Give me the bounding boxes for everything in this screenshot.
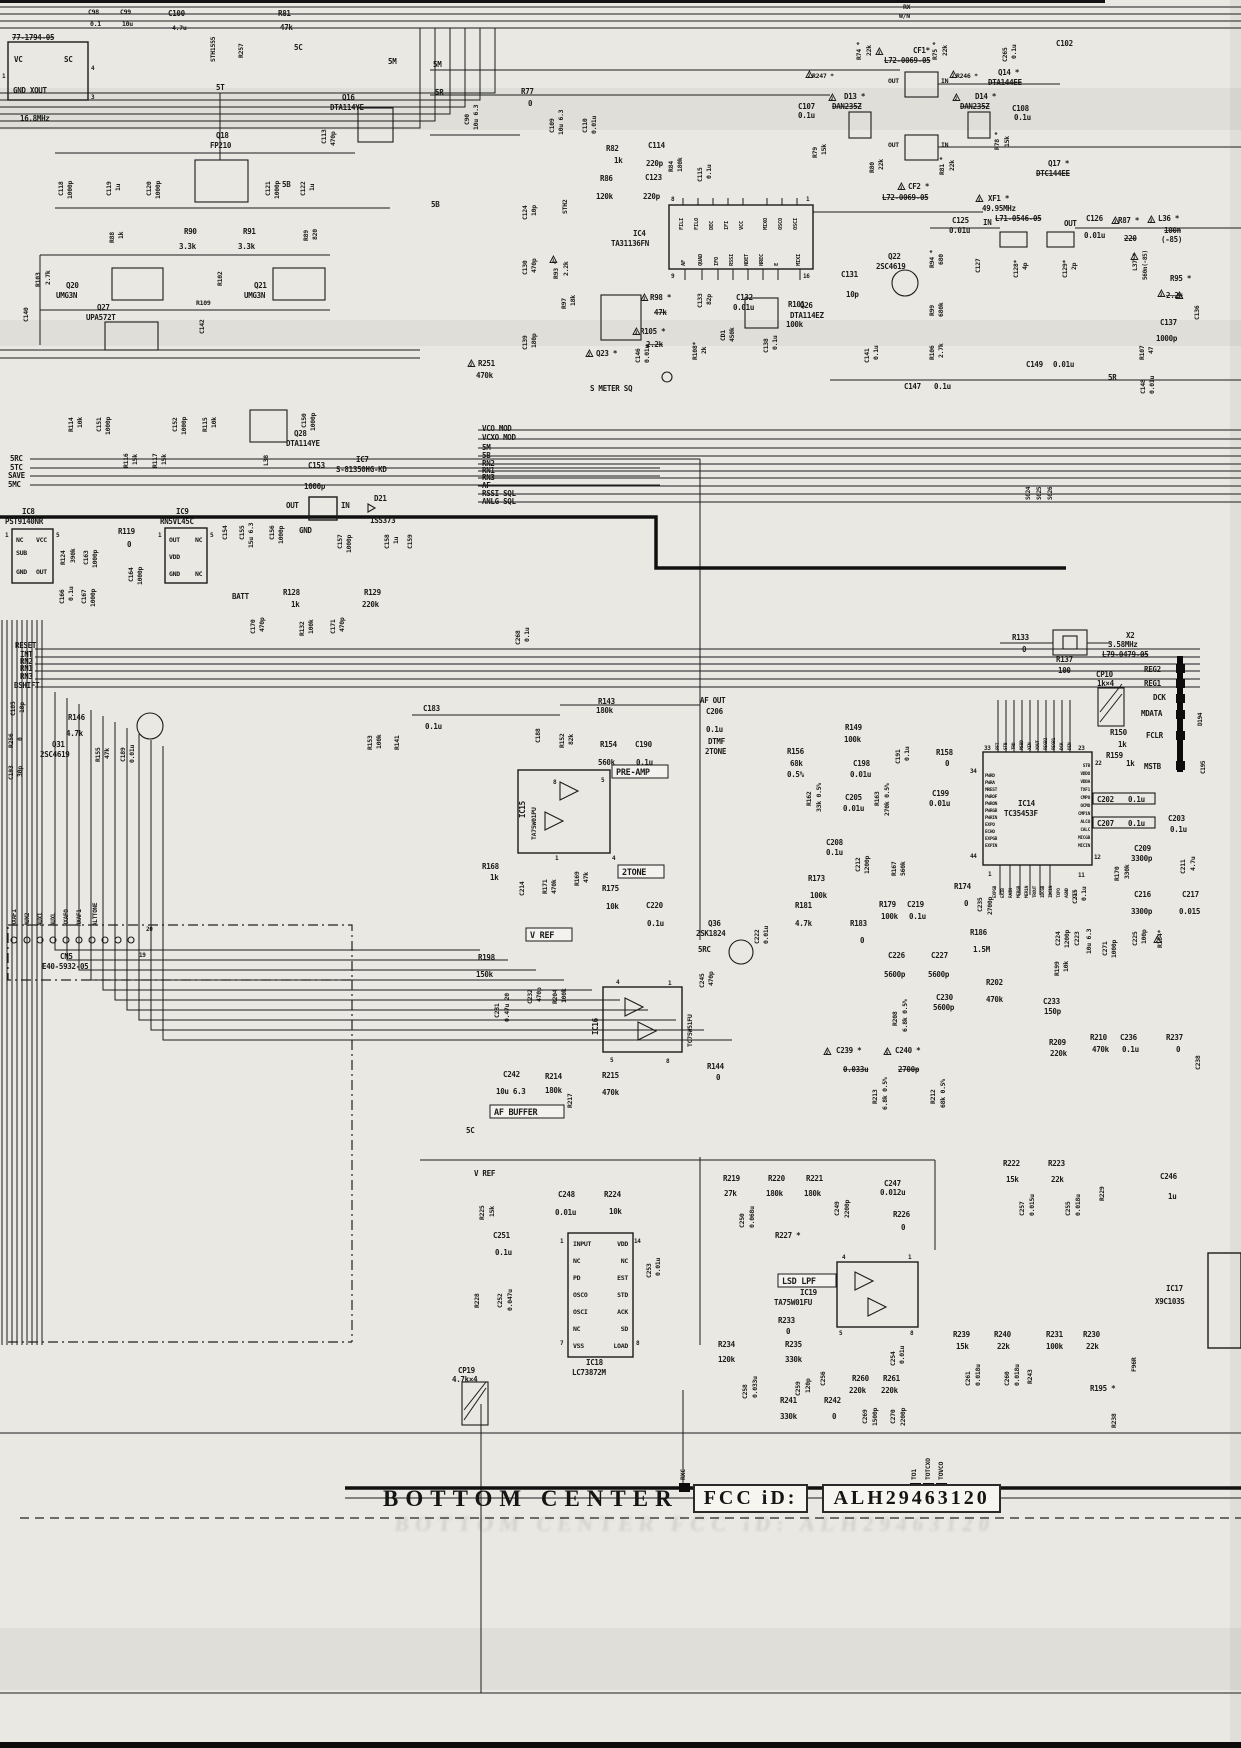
- component-label: C115: [696, 167, 704, 182]
- component-label: R88: [108, 232, 116, 243]
- component-label: 0: [786, 1327, 791, 1336]
- component-label: NREC: [759, 254, 765, 266]
- device-symbols: [11, 270, 918, 1316]
- opamp-icon: [855, 1272, 873, 1290]
- component-label: R81 *: [938, 157, 946, 175]
- component-label: 49.95MHz: [982, 204, 1016, 213]
- component-label: C110: [581, 118, 589, 133]
- component-label: REG2: [1144, 665, 1161, 674]
- component-label: R163: [873, 791, 881, 806]
- component-label: 0.01u: [555, 1208, 576, 1217]
- component-label: 0: [901, 1223, 906, 1232]
- component-label: 47k: [280, 23, 293, 32]
- component-label: 1000p: [91, 550, 99, 568]
- component-label: MREST: [985, 787, 998, 793]
- component-label: 10k: [76, 417, 84, 428]
- component-label: R199: [1053, 961, 1061, 976]
- scan-band: [0, 1628, 1241, 1690]
- component-label: 1000p: [180, 417, 188, 435]
- component-label: TXPO: [1056, 888, 1062, 898]
- component-label: 180k: [804, 1189, 822, 1198]
- component-label: 4.7k: [66, 729, 84, 738]
- component-label: TA31136FN: [611, 239, 650, 248]
- component-label: R158: [936, 748, 954, 757]
- boxed-label-text: 2TONE: [622, 868, 646, 878]
- component-label: 220p: [646, 159, 664, 168]
- component-label: C99: [120, 8, 131, 16]
- component-label: C269: [861, 1409, 869, 1424]
- component-label: CD1: [719, 330, 727, 341]
- component-label: 22k: [1086, 1342, 1099, 1351]
- component-label: 5: [601, 777, 605, 784]
- component-label: R117: [151, 453, 159, 468]
- component-label: 1u: [308, 183, 316, 191]
- component-label: IFI: [724, 221, 730, 230]
- component-label: R237: [1166, 1033, 1183, 1042]
- component-label: 15u 6.3: [247, 522, 255, 548]
- component-label: C127: [974, 258, 982, 273]
- component-label: 1u: [392, 536, 400, 544]
- component-label: R212: [929, 1089, 937, 1104]
- component-label: 0.01u: [850, 770, 871, 779]
- component-label: LC73872M: [572, 1368, 607, 1377]
- component-label: 22k: [941, 45, 949, 56]
- component-label: C256: [819, 1371, 827, 1386]
- component-label: C207: [1097, 819, 1114, 828]
- component-label: 100p: [1140, 929, 1148, 944]
- component-label: 23: [1078, 745, 1085, 752]
- component-label: 0: [945, 759, 950, 768]
- component-label: MER1N: [1024, 885, 1030, 898]
- component-label: R91: [243, 227, 256, 236]
- component-label: 0.01u: [762, 926, 770, 944]
- opamp-icon: [545, 812, 563, 830]
- component-label: C123: [645, 173, 663, 182]
- component-label: 1500p: [871, 1408, 879, 1426]
- component-label: C214: [518, 881, 526, 896]
- component-label: 0.1u: [771, 335, 779, 350]
- component-label: 22k: [865, 45, 873, 56]
- component-label: 15k: [956, 1342, 969, 1351]
- component-label: R239: [953, 1330, 971, 1339]
- component-label: 12: [1094, 854, 1101, 861]
- component-label: 15k: [131, 454, 139, 465]
- component-label: 100k: [1046, 1342, 1064, 1351]
- component-label: C231: [493, 1003, 501, 1018]
- scan-band: [0, 320, 1241, 346]
- component-label: MIXI: [796, 254, 802, 266]
- component-label: 2.2k: [562, 261, 570, 276]
- component-label: R102: [216, 271, 224, 286]
- component-label: 0.1u: [1080, 886, 1088, 901]
- component-label: 1.5M: [973, 945, 991, 954]
- component-label: C239 *: [836, 1046, 862, 1055]
- component-label: C242: [503, 1070, 520, 1079]
- component-label: C246: [1160, 1172, 1178, 1181]
- component-label: R225: [478, 1205, 486, 1220]
- component-label: 0.01u: [128, 745, 136, 763]
- component-label: SAVE: [8, 471, 26, 480]
- component-label: NC: [16, 536, 24, 544]
- component-label: BATT: [232, 592, 250, 601]
- component-label: 2k: [700, 346, 708, 354]
- component-label: 4.7u: [172, 24, 187, 32]
- component-label: 34: [970, 768, 977, 775]
- component-label: R173: [808, 874, 826, 883]
- component-label: R230: [1083, 1330, 1101, 1339]
- component-label: 47k: [103, 748, 111, 759]
- component-label: R152: [558, 733, 566, 748]
- component-label: 3.3k: [238, 242, 256, 251]
- component-label: Q26: [800, 301, 813, 310]
- component-label: D194: [1197, 712, 1204, 726]
- component-label: 1k: [614, 156, 623, 165]
- component-label: C136: [1193, 305, 1201, 320]
- component-label: R115: [201, 417, 209, 432]
- component-label: PWRGB: [985, 808, 998, 814]
- component-label: EXPIN: [985, 843, 998, 849]
- component-label: C113: [320, 129, 328, 144]
- component-label: C98: [88, 8, 99, 16]
- component-label: 1: [908, 1254, 912, 1261]
- component-label: C132: [736, 293, 753, 302]
- component-label: C148: [1139, 379, 1147, 394]
- component-label: 33: [984, 745, 991, 752]
- component-label: OUT: [169, 536, 180, 544]
- component-label: R89: [302, 230, 310, 241]
- component-label: IC14: [1018, 799, 1036, 808]
- component-label: 8: [910, 1330, 914, 1337]
- component-label: 5T: [216, 83, 225, 92]
- component-label: R174: [954, 882, 972, 891]
- component-label: R242: [824, 1396, 841, 1405]
- opamp-icon: [625, 998, 643, 1016]
- component-label: R220: [768, 1174, 786, 1183]
- component-label: C211: [1179, 859, 1187, 874]
- component-label: R97: [560, 298, 568, 309]
- component-label: C188: [534, 728, 542, 743]
- component-label: C212: [854, 857, 862, 872]
- component-label: C183: [423, 704, 441, 713]
- component-label: DIN: [1067, 742, 1073, 750]
- component-label: C147: [904, 382, 921, 391]
- component-label: IN: [941, 141, 949, 149]
- component-label: R169: [573, 871, 581, 886]
- component-label: Q36: [708, 919, 721, 928]
- component-label: IC9: [176, 507, 189, 516]
- component-label: C166: [58, 589, 66, 604]
- component-label: R114: [67, 417, 75, 432]
- wire-bundle: [0, 7, 1241, 1693]
- component-label: R119: [118, 527, 136, 536]
- component-label: 100k: [844, 735, 862, 744]
- component-label: Q27: [97, 303, 110, 312]
- component-label: LOAD: [614, 1342, 629, 1350]
- component-label: IN: [941, 77, 949, 85]
- component-label: 1: [668, 980, 672, 987]
- component-label: R217: [566, 1093, 574, 1108]
- component-label: 1000p: [345, 535, 353, 553]
- component-label: 1000p: [66, 181, 74, 199]
- component-label: 2SC4619: [876, 262, 906, 271]
- component-label: 10p: [846, 290, 859, 299]
- component-label: 0.1u: [872, 345, 880, 360]
- component-label: 10u 6.3: [472, 104, 480, 130]
- q36-fet-icon: [729, 940, 753, 964]
- component-label: 15k: [1006, 1175, 1019, 1184]
- component-label: CMPO: [1080, 795, 1090, 801]
- component-label: C137: [1160, 318, 1177, 327]
- component-label: R257: [237, 43, 245, 58]
- component-label: 1: [158, 532, 162, 539]
- component-label: ANLG SQL: [482, 497, 517, 506]
- component-label: 470p: [329, 131, 337, 146]
- component-label: Q20: [66, 281, 79, 290]
- component-label: PST9140NR: [5, 517, 44, 526]
- component-label: C202: [1097, 795, 1114, 804]
- component-label: 470k: [550, 879, 558, 894]
- component-label: C139: [521, 335, 529, 350]
- component-label: C100: [168, 9, 186, 18]
- component-label: C142: [198, 319, 206, 334]
- component-label: L71-0546-05: [995, 214, 1041, 223]
- component-label: RN3: [20, 672, 33, 681]
- component-label: R224: [604, 1190, 622, 1199]
- component-label: 0.1u: [1014, 113, 1031, 122]
- component-label: XOUT: [1035, 740, 1041, 750]
- component-label: REG1: [1144, 679, 1162, 688]
- component-label: R208: [891, 1011, 899, 1026]
- component-label: NC: [573, 1257, 581, 1265]
- component-label: 22k: [1051, 1175, 1064, 1184]
- component-label: 0.033u: [843, 1065, 868, 1074]
- component-label: C252: [496, 1293, 504, 1308]
- component-label: C193: [7, 765, 15, 780]
- component-label: R156: [787, 747, 805, 756]
- component-label: 0.1u: [647, 919, 664, 928]
- terminal-pad: [1176, 679, 1185, 688]
- component-label: R162: [805, 791, 813, 806]
- component-label: R94 *: [928, 250, 936, 268]
- component-label: 4: [616, 979, 620, 986]
- component-label: GND XOUT: [13, 86, 48, 95]
- component-label: IC17: [1166, 1284, 1183, 1293]
- component-label: 1u: [1168, 1192, 1176, 1201]
- component-label: R171: [541, 879, 549, 894]
- component-label: IFO: [714, 256, 720, 266]
- component-label: 9: [671, 273, 675, 280]
- component-label: TOVCO: [937, 1462, 945, 1480]
- component-label: 0: [127, 540, 132, 549]
- component-label: 3300p: [1131, 854, 1153, 863]
- component-label: C109: [548, 118, 556, 133]
- component-label: 1k: [490, 873, 499, 882]
- component-label: C185: [9, 701, 17, 716]
- component-label: R186: [970, 928, 988, 937]
- terminal-pad: [1176, 731, 1185, 740]
- component-label: CF2 *: [908, 182, 930, 191]
- component-label: GND: [16, 568, 27, 576]
- component-label: 5: [56, 532, 60, 539]
- component-label: 15k: [160, 454, 168, 465]
- component-label: R222: [1003, 1159, 1020, 1168]
- cn5-pin-icon: [89, 937, 95, 943]
- component-label: R74 *: [855, 42, 863, 60]
- component-label: R261: [883, 1374, 901, 1383]
- component-label: C130: [521, 260, 529, 275]
- component-label: C206: [706, 707, 724, 716]
- component-label: EXPGB: [985, 836, 998, 842]
- component-label: 30p: [16, 766, 24, 777]
- component-label: AF: [681, 260, 687, 266]
- q31-transistor-icon: [137, 713, 163, 739]
- component-label: R103: [34, 272, 42, 287]
- component-label: C138: [762, 338, 770, 353]
- component-label: Q31: [52, 740, 65, 749]
- component-label: 16.8MHz: [20, 114, 50, 123]
- q21-box: [273, 268, 325, 300]
- component-label: CN5: [60, 952, 73, 961]
- component-label: VCC: [36, 536, 47, 544]
- boxed-label-text: LSD LPF: [782, 1277, 816, 1287]
- component-label: 10u 6.3: [496, 1087, 526, 1096]
- component-label: VDD: [617, 1240, 628, 1248]
- component-label: 0.1u: [826, 848, 843, 857]
- component-label: 470p: [338, 617, 346, 632]
- component-label: 11: [1078, 872, 1085, 879]
- component-label: AF OUT: [700, 696, 726, 705]
- component-label: 8: [553, 779, 557, 786]
- component-label: IN: [983, 218, 992, 227]
- component-label: R143: [598, 697, 616, 706]
- component-label: R124: [59, 550, 67, 565]
- component-label: 180k: [676, 157, 684, 172]
- component-label: R87 *: [1118, 216, 1140, 225]
- component-label: C158: [383, 534, 391, 549]
- component-label: C190: [635, 740, 653, 749]
- component-label: C119: [105, 181, 113, 196]
- component-label: C226: [888, 951, 906, 960]
- component-label: EST: [617, 1274, 628, 1282]
- component-label: 220: [1124, 234, 1137, 243]
- component-label: R233: [778, 1316, 796, 1325]
- component-label: Q28: [294, 429, 307, 438]
- component-label: NDET: [744, 253, 750, 266]
- component-label: 0.5%: [787, 770, 805, 779]
- component-label: 0.018u: [974, 1364, 982, 1386]
- component-label: C205: [845, 793, 862, 802]
- component-label: REGB1: [1051, 737, 1057, 750]
- component-label: C203: [1168, 814, 1186, 823]
- component-label: 1200p: [863, 856, 871, 874]
- component-label: OSCO: [778, 217, 784, 230]
- bleedthrough-text: BOTTOM CENTER FCC iD: ALH29463120: [394, 1512, 997, 1537]
- component-label: NC: [621, 1257, 629, 1265]
- component-label: R99: [928, 305, 936, 316]
- component-label: 5600p: [928, 970, 950, 979]
- ic4-box: [669, 205, 813, 269]
- opamp-icon: [560, 782, 578, 800]
- component-label: DTMF: [708, 737, 726, 746]
- component-label: MICGB: [1078, 835, 1091, 841]
- component-label: 1: [806, 196, 810, 203]
- component-label: 560k: [899, 861, 907, 876]
- component-label: 4p: [1021, 262, 1029, 270]
- component-label: C248: [558, 1190, 576, 1199]
- component-label: 0.47u 20: [503, 993, 511, 1022]
- component-label: 0.01u: [1084, 231, 1105, 240]
- cn5-pin-icon: [63, 937, 69, 943]
- component-label: R223: [1048, 1159, 1066, 1168]
- component-label: 10u 6.3: [1085, 928, 1093, 954]
- component-label: C140: [22, 307, 30, 322]
- component-label: R260: [852, 1374, 870, 1383]
- component-label: 4.7k×4: [452, 1375, 478, 1384]
- component-label: C236: [1120, 1033, 1138, 1042]
- component-label: R209: [1049, 1038, 1067, 1047]
- component-label: VCXO MOD: [482, 433, 517, 442]
- component-label: CP19: [458, 1366, 476, 1375]
- scan-edge-top: [0, 0, 1105, 3]
- generated-labels: 77-1794-05VCSCGND XOUT41316.8MHzC980.1C9…: [2, 3, 1207, 1492]
- component-label: 120k: [596, 192, 614, 201]
- component-label: 0: [1176, 1045, 1181, 1054]
- component-label: C128*: [1012, 260, 1020, 278]
- component-label: OUT: [888, 141, 899, 149]
- component-label: R229: [1098, 1186, 1106, 1201]
- component-label: 180k: [596, 706, 614, 715]
- component-label: IDC1N: [1048, 885, 1054, 898]
- component-label: R240: [994, 1330, 1012, 1339]
- component-label: 1000p: [89, 589, 97, 607]
- component-label: R129: [364, 588, 382, 597]
- component-label: R243: [1026, 1369, 1034, 1384]
- component-label: 0.1u: [706, 725, 723, 734]
- component-label: 470k: [602, 1088, 620, 1097]
- component-label: SUB: [16, 549, 27, 557]
- component-label: 8: [636, 1340, 640, 1347]
- component-label: C233: [1043, 997, 1061, 1006]
- component-label: OUT: [286, 501, 299, 510]
- component-label: C133: [696, 293, 704, 308]
- component-label: 0: [860, 936, 865, 945]
- component-label: 10k: [1062, 961, 1070, 972]
- component-label: RXAF1: [76, 909, 83, 926]
- component-label: Q14 *: [998, 68, 1020, 77]
- component-label: L36 *: [1158, 214, 1180, 223]
- component-label: 0.1u: [495, 1248, 512, 1257]
- component-label: 0: [964, 899, 969, 908]
- component-label: R231: [1046, 1330, 1064, 1339]
- component-label: 100: [1058, 666, 1071, 675]
- component-label: 47k: [654, 308, 667, 317]
- q18-box: [195, 160, 248, 202]
- q20-box: [112, 268, 163, 300]
- component-label: C90: [463, 114, 471, 125]
- component-label: IC7: [356, 455, 369, 464]
- component-label: 18p: [18, 702, 26, 713]
- component-label: 100k: [307, 619, 315, 634]
- component-label: C222: [753, 929, 761, 944]
- component-label: R227 *: [775, 1231, 801, 1240]
- component-label: 0.033u: [751, 1376, 759, 1398]
- component-label: R128: [283, 588, 301, 597]
- component-label: C156: [268, 525, 276, 540]
- component-label: STH1555: [209, 36, 217, 62]
- component-label: 100k: [375, 734, 383, 749]
- component-label: R219: [723, 1174, 741, 1183]
- component-label: R181: [795, 901, 813, 910]
